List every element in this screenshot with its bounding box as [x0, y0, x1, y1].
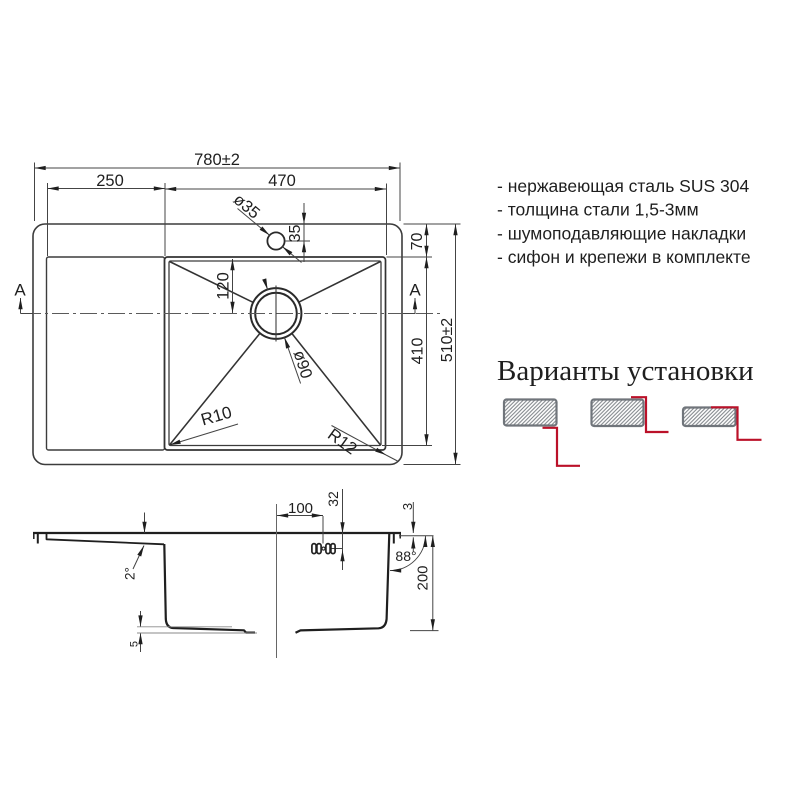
svg-text:ø90: ø90	[290, 348, 316, 381]
svg-text:- шумоподавляющие накладки: - шумоподавляющие накладки	[497, 224, 746, 244]
svg-text:410: 410	[410, 338, 427, 365]
svg-text:3: 3	[400, 503, 415, 510]
svg-text:250: 250	[96, 172, 124, 190]
svg-text:- толщина стали 1,5-3мм: - толщина стали 1,5-3мм	[497, 200, 699, 220]
svg-text:5: 5	[129, 641, 141, 647]
svg-text:780±2: 780±2	[194, 151, 240, 169]
svg-text:470: 470	[268, 172, 296, 190]
svg-text:32: 32	[325, 491, 341, 507]
svg-text:70: 70	[409, 233, 426, 251]
svg-text:88°: 88°	[395, 548, 416, 564]
svg-text:A: A	[14, 281, 26, 300]
svg-text:2°: 2°	[123, 567, 138, 580]
svg-text:- сифон и крепежи в комплекте: - сифон и крепежи в комплекте	[497, 247, 751, 267]
svg-text:Варианты установки: Варианты установки	[497, 355, 754, 387]
svg-text:R12: R12	[324, 425, 360, 459]
svg-text:R10: R10	[199, 403, 234, 430]
svg-text:200: 200	[415, 565, 432, 590]
svg-text:35: 35	[287, 225, 304, 243]
svg-text:- нержавеющая сталь SUS 304: - нержавеющая сталь SUS 304	[497, 176, 749, 196]
svg-text:510±2: 510±2	[439, 318, 456, 362]
svg-text:120: 120	[215, 272, 233, 300]
svg-text:ø35: ø35	[230, 190, 263, 222]
svg-text:100: 100	[288, 500, 313, 517]
svg-text:A: A	[409, 281, 421, 300]
